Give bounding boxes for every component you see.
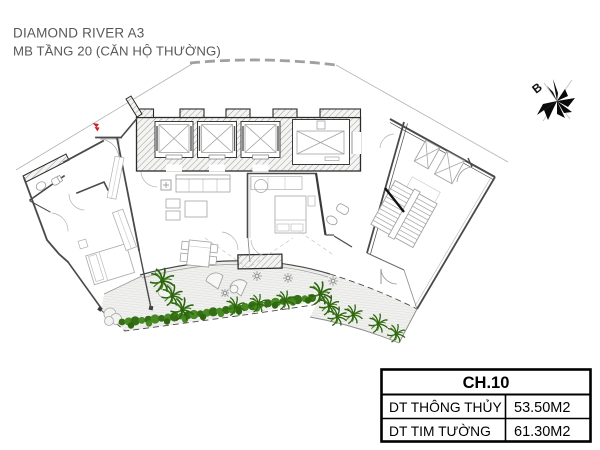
svg-text:DT TIM TƯỜNG: DT TIM TƯỜNG [389,423,491,439]
svg-text:MB TẦNG 20 (CĂN HỘ THƯỜNG): MB TẦNG 20 (CĂN HỘ THƯỜNG) [13,44,221,59]
svg-text:CH.10: CH.10 [463,374,510,392]
svg-text:DT THÔNG THỦY: DT THÔNG THỦY [389,398,502,415]
svg-text:53.50M2: 53.50M2 [514,400,570,416]
svg-text:DIAMOND RIVER A3: DIAMOND RIVER A3 [13,26,144,41]
svg-text:61.30M2: 61.30M2 [514,424,570,440]
